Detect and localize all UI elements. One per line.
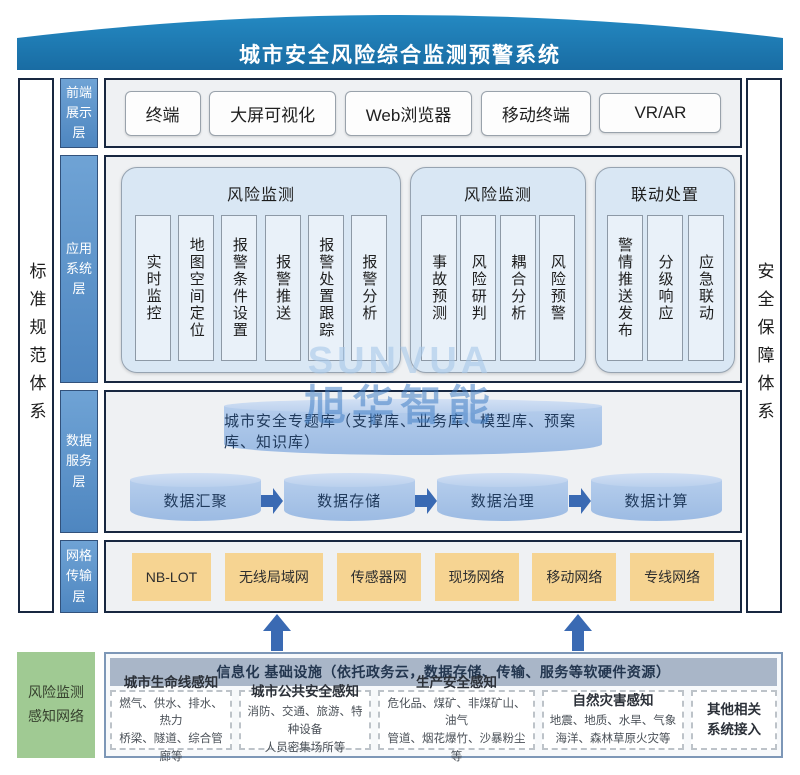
big-screen-box: 大屏可视化	[209, 91, 336, 136]
sense-desc: 燃气、供水、排水、热力 桥梁、隧道、综合管廊等	[114, 696, 228, 767]
app-item: 事故预测	[421, 215, 457, 361]
right-arrow-icon	[569, 488, 591, 514]
sense-title: 自然灾害感知	[573, 691, 654, 711]
sense-box-public-safety: 城市公共安全感知 消防、交通、旅游、特种设备 人员密集场所等	[239, 690, 371, 750]
app-item: 报警处置跟踪	[308, 215, 344, 361]
right-arrow-icon	[415, 488, 437, 514]
sense-box-other-systems: 其他相关 系统接入	[691, 690, 777, 750]
app-item: 分级响应	[647, 215, 683, 361]
group-linked-disposal: 联动处置 警情推送发布 分级响应 应急联动	[595, 167, 735, 373]
tab-front-display-layer: 前端 展示 层	[60, 78, 98, 148]
sense-title: 生产安全感知	[416, 673, 497, 693]
sensing-boxes-row: 城市生命线感知 燃气、供水、排水、热力 桥梁、隧道、综合管廊等 城市公共安全感知…	[110, 690, 777, 750]
sense-desc: 消防、交通、旅游、特种设备 人员密集场所等	[243, 704, 367, 757]
group-title: 风险监测	[411, 168, 585, 205]
cylinder-label: 数据计算	[591, 480, 722, 521]
data-cylinder: 数据汇聚	[130, 480, 261, 521]
app-item: 警情推送发布	[607, 215, 643, 361]
group-title: 风险监测	[122, 168, 400, 205]
tab-data-service-layer: 数据 服务 层	[60, 390, 98, 533]
sense-title: 城市公共安全感知	[251, 682, 359, 702]
tab-network-layer: 网格 传输 层	[60, 540, 98, 613]
sense-box-natural-disaster: 自然灾害感知 地震、地质、水旱、气象 海洋、森林草原火灾等	[542, 690, 684, 750]
cylinder-label: 数据治理	[437, 480, 568, 521]
repository-cylinder: 城市安全专题库（支撑库、业务库、模型库、预案库、知识库）	[224, 406, 602, 455]
network-panel: NB-LOT 无线局域网 传感器网 现场网络 移动网络 专线网络	[104, 540, 742, 613]
web-browser-box: Web浏览器	[345, 91, 473, 136]
network-box: 传感器网	[337, 553, 421, 601]
data-cylinder: 数据治理	[437, 480, 568, 521]
network-box: 无线局域网	[225, 553, 323, 601]
sense-title: 城市生命线感知	[124, 673, 219, 693]
group-risk-monitoring: 风险监测 实时监控 地图空间定位 报警条件设置 报警推送 报警处置跟踪 报警分析	[121, 167, 401, 373]
repository-label: 城市安全专题库（支撑库、业务库、模型库、预案库、知识库）	[224, 406, 602, 455]
data-cylinder: 数据存储	[284, 480, 415, 521]
infrastructure-panel: 信息化 基础设施（依托政务云，数据存储、传输、服务等软硬件资源） 城市生命线感知…	[104, 652, 783, 758]
up-arrow-icon	[263, 614, 291, 651]
sense-box-production-safety: 生产安全感知 危化品、煤矿、非煤矿山、油气 管道、烟花爆竹、沙暴粉尘等	[378, 690, 535, 750]
network-box: 移动网络	[532, 553, 616, 601]
front-display-panel: 终端 大屏可视化 Web浏览器 移动终端 VR/AR	[104, 78, 742, 148]
terminal-box: 终端	[125, 91, 201, 136]
sense-desc: 地震、地质、水旱、气象 海洋、森林草原火灾等	[550, 713, 677, 749]
sensing-network-label: 风险监测 感知网络	[17, 652, 95, 758]
sense-box-lifeline: 城市生命线感知 燃气、供水、排水、热力 桥梁、隧道、综合管廊等	[110, 690, 232, 750]
sense-title: 其他相关 系统接入	[707, 700, 761, 741]
group-title: 联动处置	[596, 168, 734, 205]
tab-application-layer: 应用 系统 层	[60, 155, 98, 383]
data-service-panel: 城市安全专题库（支撑库、业务库、模型库、预案库、知识库） 数据汇聚 数据存储 数…	[104, 390, 742, 533]
pillar-standards: 标准规范体系	[18, 78, 54, 613]
page-title: 城市安全风险综合监测预警系统	[17, 39, 783, 69]
app-item: 实时监控	[135, 215, 171, 361]
vr-ar-box: VR/AR	[599, 93, 721, 133]
network-box: NB-LOT	[132, 553, 211, 601]
right-arrow-icon	[261, 488, 283, 514]
data-cylinder: 数据计算	[591, 480, 722, 521]
sense-desc: 危化品、煤矿、非煤矿山、油气 管道、烟花爆竹、沙暴粉尘等	[382, 696, 531, 767]
cylinder-label: 数据存储	[284, 480, 415, 521]
network-box: 专线网络	[630, 553, 714, 601]
app-item: 应急联动	[688, 215, 724, 361]
title-banner: 城市安全风险综合监测预警系统	[17, 13, 783, 70]
app-item: 耦合分析	[500, 215, 536, 361]
data-flow: 数据汇聚 数据存储 数据治理 数据计算	[130, 478, 722, 522]
app-item: 地图空间定位	[178, 215, 214, 361]
app-item: 报警分析	[351, 215, 387, 361]
pillar-security: 安全保障体系	[746, 78, 782, 613]
app-item: 风险预警	[539, 215, 575, 361]
architecture-diagram: 城市安全风险综合监测预警系统 标准规范体系 安全保障体系 前端 展示 层 应用 …	[0, 0, 800, 775]
app-item: 报警条件设置	[221, 215, 257, 361]
network-box: 现场网络	[435, 553, 519, 601]
mobile-terminal-box: 移动终端	[481, 91, 591, 136]
up-arrow-icon	[564, 614, 592, 651]
group-risk-analysis: 风险监测 事故预测 风险研判 耦合分析 风险预警	[410, 167, 586, 373]
cylinder-label: 数据汇聚	[130, 480, 261, 521]
app-item: 报警推送	[265, 215, 301, 361]
app-item: 风险研判	[460, 215, 496, 361]
application-panel: 风险监测 实时监控 地图空间定位 报警条件设置 报警推送 报警处置跟踪 报警分析…	[104, 155, 742, 383]
